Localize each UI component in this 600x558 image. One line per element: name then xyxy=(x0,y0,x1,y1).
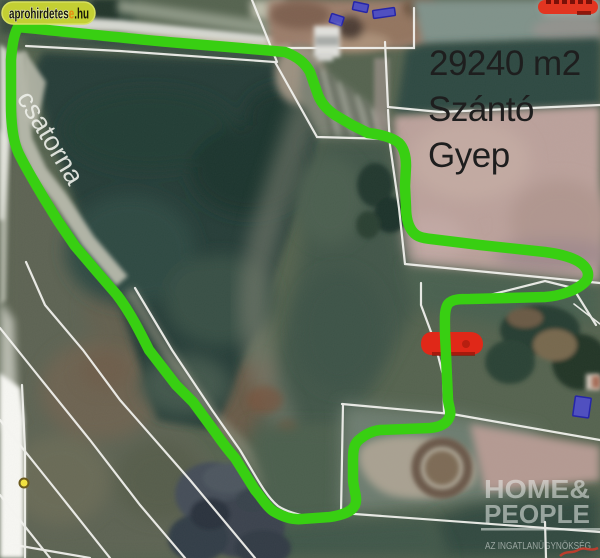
svg-text:PEOPLE: PEOPLE xyxy=(484,499,590,529)
svg-text:29240 m2: 29240 m2 xyxy=(429,44,581,83)
svg-text:Gyep: Gyep xyxy=(428,136,510,175)
svg-text:Szántó: Szántó xyxy=(428,90,534,129)
svg-text:aprohirdetese.hu: aprohirdetese.hu xyxy=(9,6,89,23)
